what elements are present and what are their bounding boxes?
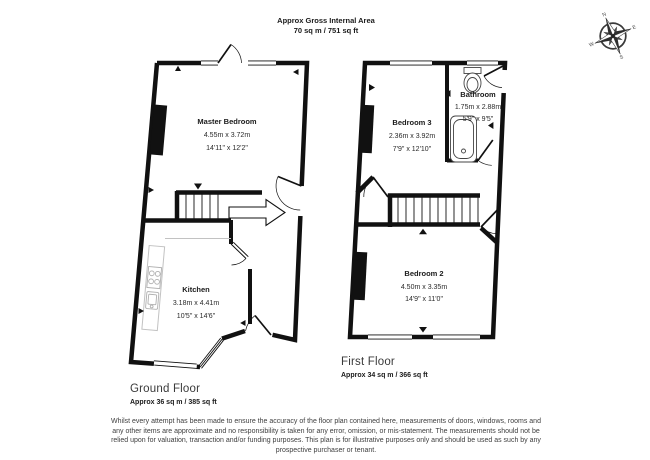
hob-icon xyxy=(147,267,162,289)
ground-floor-label: Ground Floor Approx 36 sq m / 385 sq ft xyxy=(130,383,217,406)
room-dims-metric: 4.50m x 3.35m xyxy=(401,284,447,291)
bathroom-fixtures xyxy=(451,68,482,163)
floor-name: First Floor xyxy=(341,356,428,368)
bay-window xyxy=(199,338,224,368)
room-dims-imperial: 10'5" x 14'6" xyxy=(177,313,216,320)
stairs-up xyxy=(398,198,478,235)
floorplan-page: { "header": { "line1": "Approx Gross Int… xyxy=(0,0,650,460)
title-line2: 70 sq m / 751 sq ft xyxy=(176,26,476,36)
stairs-down-arrow xyxy=(194,184,202,190)
radiator xyxy=(352,252,367,301)
first-floor-plan: Bedroom 3 2.36m x 3.92m 7'9" x 12'10" Ba… xyxy=(340,40,535,345)
room-dims-metric: 3.18m x 4.41m xyxy=(173,300,219,307)
floor-area: Approx 36 sq m / 385 sq ft xyxy=(130,399,217,406)
first-floor-label: First Floor Approx 34 sq m / 366 sq ft xyxy=(341,356,428,379)
stairs-down xyxy=(178,184,218,219)
room-dims-metric: 2.36m x 3.92m xyxy=(389,133,435,140)
room-label-master-bedroom: Master Bedroom xyxy=(197,117,257,126)
floor-area: Approx 34 sq m / 366 sq ft xyxy=(341,372,428,379)
room-label-kitchen: Kitchen xyxy=(182,285,210,294)
room-label-bedroom3: Bedroom 3 xyxy=(392,118,431,127)
radiator xyxy=(359,105,374,154)
page-title: Approx Gross Internal Area 70 sq m / 751… xyxy=(176,16,476,35)
disclaimer-text: Whilst every attempt has been made to en… xyxy=(108,417,544,455)
room-label-bedroom2: Bedroom 2 xyxy=(404,269,443,278)
room-dims-imperial: 5'9" x 9'5" xyxy=(463,116,494,123)
room-dims-imperial: 7'9" x 12'10" xyxy=(393,146,432,153)
ground-floor-plan: Master Bedroom 4.55m x 3.72m 14'11" x 12… xyxy=(125,40,325,375)
compass-s: S xyxy=(619,54,625,61)
entrance-arrow-icon xyxy=(229,200,285,226)
room-dims-metric: 4.55m x 3.72m xyxy=(204,132,250,139)
ground-wall-marks xyxy=(139,66,299,326)
stairs-up-arrow xyxy=(419,229,427,235)
compass-w: W xyxy=(588,41,595,48)
title-line1: Approx Gross Internal Area xyxy=(176,16,476,26)
compass-rose-icon: N E S W xyxy=(584,7,642,65)
ground-doors xyxy=(218,45,301,336)
room-dims-metric: 1.75m x 2.88m xyxy=(455,104,501,111)
compass-e: E xyxy=(632,24,638,31)
room-label-bathroom: Bathroom xyxy=(460,90,496,99)
room-dims-imperial: 14'9" x 11'0" xyxy=(405,296,443,303)
room-dims-imperial: 14'11" x 12'2" xyxy=(206,145,248,152)
floor-name: Ground Floor xyxy=(130,383,217,395)
compass-n: N xyxy=(602,11,608,18)
